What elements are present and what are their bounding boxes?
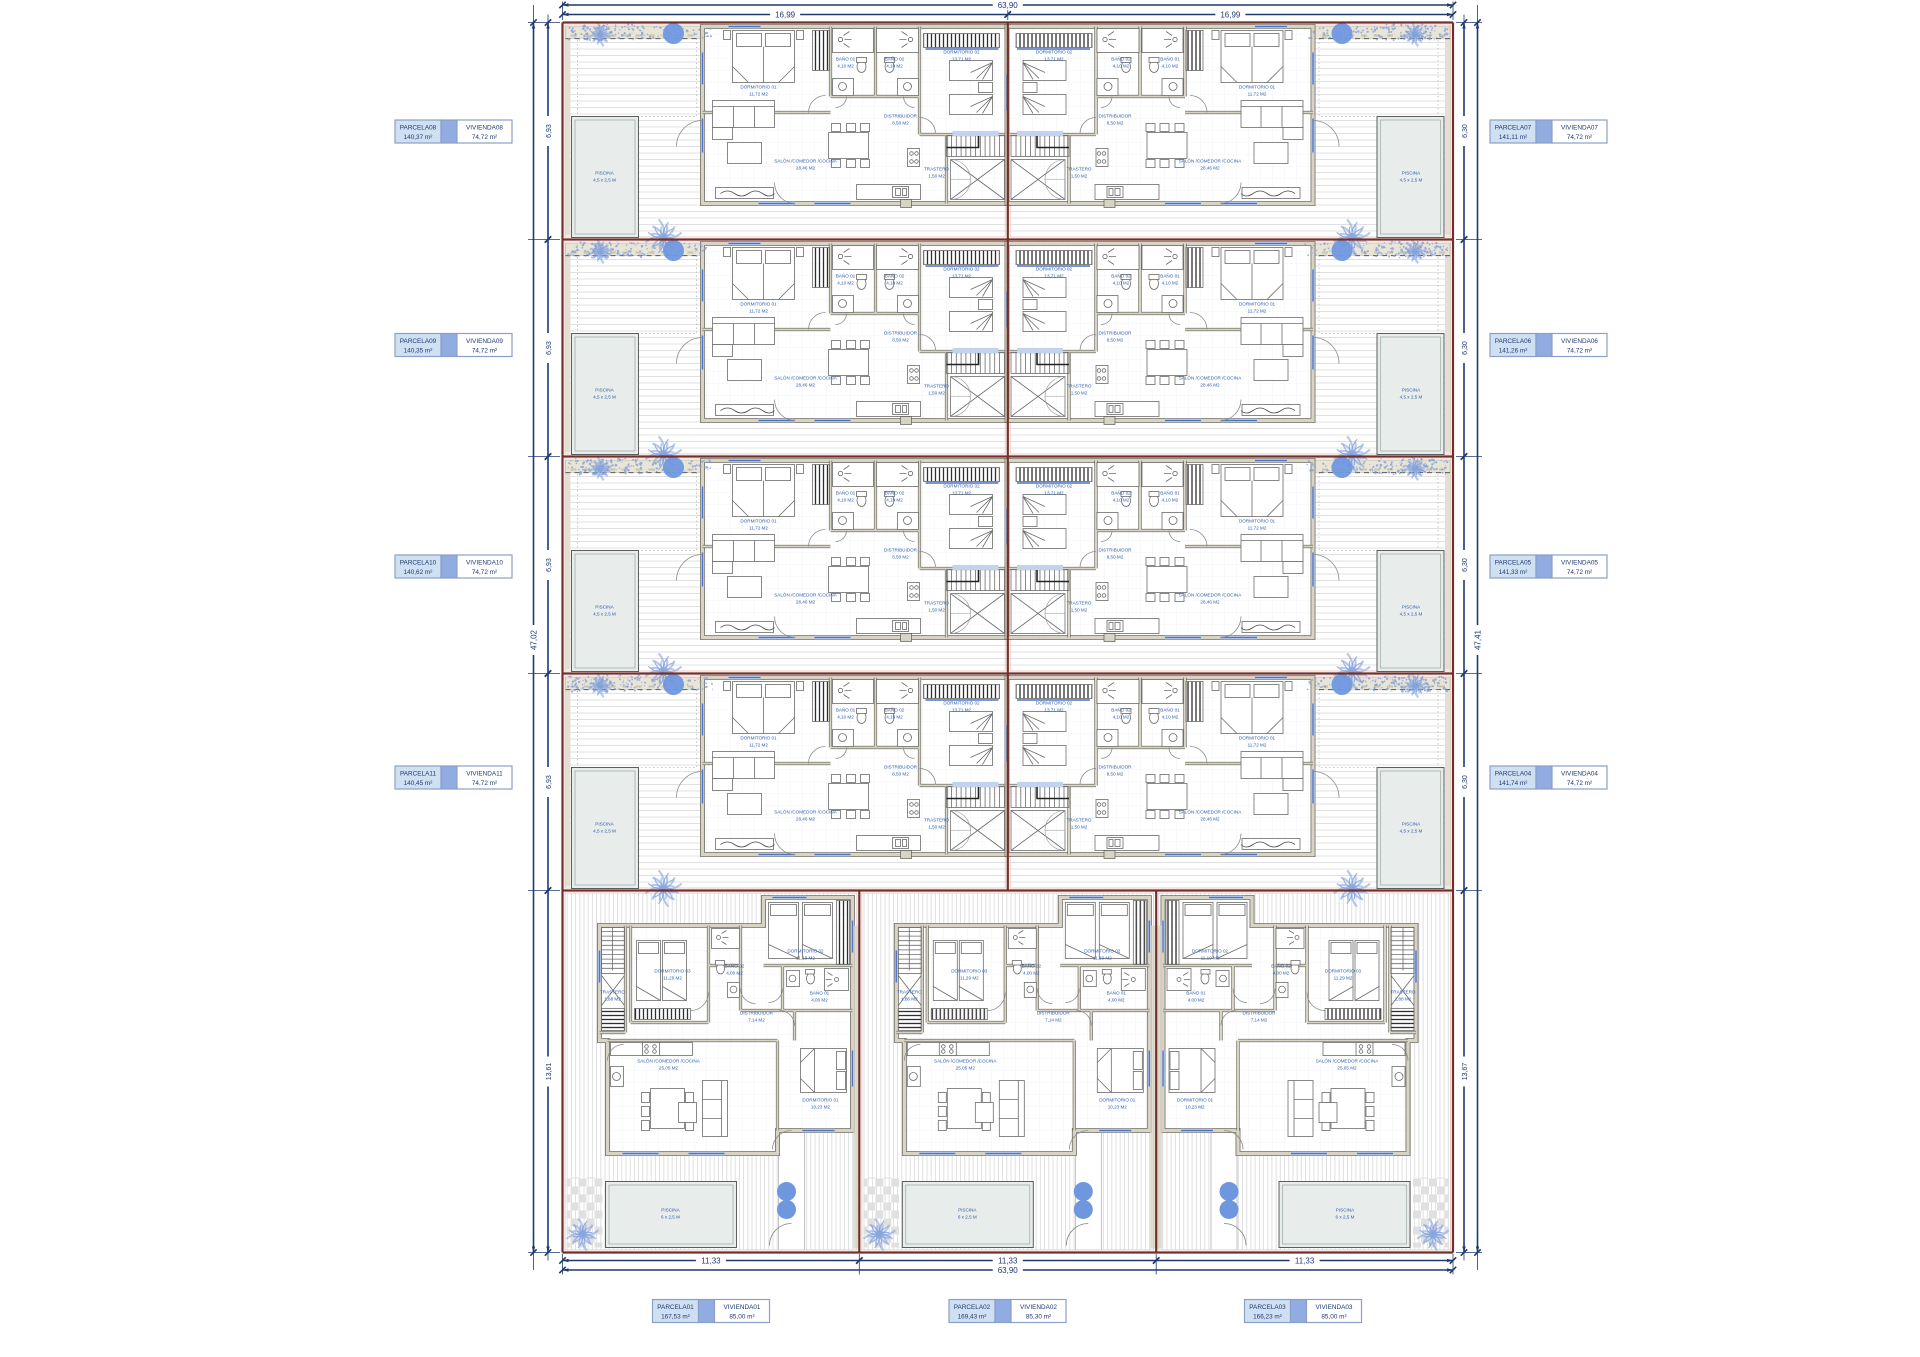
svg-text:BAÑO 01: BAÑO 01: [1160, 490, 1180, 496]
svg-text:PISCINA: PISCINA: [1402, 605, 1421, 610]
svg-text:BAÑO 02: BAÑO 02: [1111, 707, 1131, 713]
svg-text:PISCINA: PISCINA: [1402, 388, 1421, 393]
svg-text:28,46 M2: 28,46 M2: [796, 817, 816, 822]
svg-text:8,50 M2: 8,50 M2: [892, 121, 909, 126]
svg-text:PISCINA: PISCINA: [1402, 171, 1421, 176]
svg-text:DORMITORIO 02: DORMITORIO 02: [943, 267, 980, 272]
svg-text:13,71 M2: 13,71 M2: [952, 274, 972, 279]
svg-text:VIVIENDA08: VIVIENDA08: [466, 125, 503, 132]
svg-text:4,10 M2: 4,10 M2: [1113, 498, 1130, 503]
svg-text:DORMITORIO 01: DORMITORIO 01: [802, 1098, 839, 1103]
svg-text:DORMITORIO 01: DORMITORIO 01: [740, 85, 777, 90]
svg-text:4,10 M2: 4,10 M2: [837, 498, 854, 503]
svg-text:7,14 M2: 7,14 M2: [748, 1018, 765, 1023]
svg-text:10,23 M2: 10,23 M2: [1108, 1105, 1128, 1110]
svg-text:SALÓN /COMEDOR /COCINA: SALÓN /COMEDOR /COCINA: [1179, 375, 1242, 381]
svg-text:74,72 m²: 74,72 m²: [1567, 348, 1592, 355]
svg-text:SALÓN /COMEDOR /COCINA: SALÓN /COMEDOR /COCINA: [1179, 158, 1242, 164]
svg-text:74,72 m²: 74,72 m²: [472, 348, 497, 355]
svg-text:11,19 M2: 11,19 M2: [796, 956, 815, 961]
svg-text:141,74 m²: 141,74 m²: [1499, 780, 1528, 787]
svg-text:8,50 M2: 8,50 M2: [1107, 121, 1124, 126]
svg-text:SALÓN /COMEDOR /COCINA: SALÓN /COMEDOR /COCINA: [774, 158, 837, 164]
svg-text:4,10 M2: 4,10 M2: [837, 281, 854, 286]
svg-text:4,10 M2: 4,10 M2: [1162, 715, 1179, 720]
svg-text:13,71 M2: 13,71 M2: [1044, 708, 1064, 713]
svg-text:BAÑO 02: BAÑO 02: [885, 273, 905, 279]
svg-text:PARCELA07: PARCELA07: [1495, 125, 1532, 132]
svg-text:1,50 M2: 1,50 M2: [928, 825, 945, 830]
svg-text:1,88 M2: 1,88 M2: [604, 997, 621, 1002]
svg-text:PARCELA04: PARCELA04: [1495, 771, 1532, 778]
svg-text:11,19 M2: 11,19 M2: [1201, 956, 1220, 961]
svg-text:DORMITORIO 01: DORMITORIO 01: [740, 736, 777, 741]
svg-text:8,50 M2: 8,50 M2: [1107, 772, 1124, 777]
svg-text:VIVIENDA02: VIVIENDA02: [1020, 1304, 1057, 1311]
svg-text:DISTRIBUIDOR: DISTRIBUIDOR: [1099, 114, 1133, 119]
svg-text:6,30: 6,30: [1462, 775, 1469, 789]
svg-text:11,29 M2: 11,29 M2: [960, 976, 979, 981]
svg-text:1,88 M2: 1,88 M2: [1395, 997, 1412, 1002]
svg-text:6,30: 6,30: [1462, 124, 1469, 138]
svg-text:28,46 M2: 28,46 M2: [1200, 166, 1220, 171]
svg-text:PARCELA01: PARCELA01: [657, 1304, 694, 1311]
svg-text:VIVIENDA09: VIVIENDA09: [466, 338, 503, 345]
svg-text:11,19 M2: 11,19 M2: [1093, 956, 1112, 961]
svg-text:6,30: 6,30: [1462, 341, 1469, 355]
svg-text:1,50 M2: 1,50 M2: [928, 391, 945, 396]
svg-text:TRASTERO: TRASTERO: [924, 601, 949, 606]
svg-text:4,10 M2: 4,10 M2: [837, 715, 854, 720]
svg-text:7,14 M2: 7,14 M2: [1251, 1018, 1268, 1023]
svg-text:BAÑO 01: BAÑO 01: [836, 490, 856, 496]
svg-text:BAÑO 02: BAÑO 02: [1111, 56, 1131, 62]
svg-text:DISTRIBUIDOR: DISTRIBUIDOR: [1037, 1011, 1071, 1016]
svg-text:TRASTERO: TRASTERO: [600, 990, 625, 995]
svg-text:BAÑO 02: BAÑO 02: [885, 56, 905, 62]
svg-text:BAÑO 01: BAÑO 01: [836, 707, 856, 713]
svg-text:11,29 M2: 11,29 M2: [1334, 976, 1353, 981]
svg-text:1,50 M2: 1,50 M2: [928, 608, 945, 613]
svg-text:28,46 M2: 28,46 M2: [796, 600, 816, 605]
svg-text:140,45 m²: 140,45 m²: [404, 780, 433, 787]
svg-text:4,10 M2: 4,10 M2: [886, 498, 903, 503]
svg-text:4,5 x 2,5 M: 4,5 x 2,5 M: [1400, 829, 1423, 834]
svg-text:VIVIENDA05: VIVIENDA05: [1561, 560, 1598, 567]
svg-text:28,46 M2: 28,46 M2: [1200, 817, 1220, 822]
svg-text:11,72 M2: 11,72 M2: [1248, 743, 1267, 748]
svg-text:8,50 M2: 8,50 M2: [892, 555, 909, 560]
svg-text:PARCELA10: PARCELA10: [400, 560, 437, 567]
svg-text:6 x 2,5 M: 6 x 2,5 M: [1336, 1215, 1355, 1220]
svg-text:VIVIENDA01: VIVIENDA01: [724, 1304, 761, 1311]
svg-text:DORMITORIO 01: DORMITORIO 01: [1099, 1098, 1136, 1103]
svg-text:TRASTERO: TRASTERO: [897, 990, 922, 995]
svg-text:BAÑO 02: BAÑO 02: [725, 963, 745, 969]
svg-text:BAÑO 02: BAÑO 02: [1111, 273, 1131, 279]
svg-text:DORMITORIO 02: DORMITORIO 02: [1084, 949, 1121, 954]
svg-text:1,88 M2: 1,88 M2: [901, 997, 918, 1002]
svg-text:DISTRIBUIDOR: DISTRIBUIDOR: [1099, 548, 1133, 553]
svg-text:8,50 M2: 8,50 M2: [892, 772, 909, 777]
svg-text:1,50 M2: 1,50 M2: [1071, 608, 1088, 613]
svg-text:16,99: 16,99: [1220, 11, 1241, 20]
svg-text:6,93: 6,93: [546, 124, 553, 138]
svg-text:PARCELA11: PARCELA11: [400, 771, 436, 778]
svg-text:SALÓN /COMEDOR /COCINA: SALÓN /COMEDOR /COCINA: [1316, 1058, 1379, 1064]
svg-text:PISCINA: PISCINA: [661, 1208, 680, 1213]
svg-text:DORMITORIO 01: DORMITORIO 01: [1239, 85, 1276, 90]
svg-text:11,72 M2: 11,72 M2: [749, 309, 768, 314]
svg-text:4,5 x 2,5 M: 4,5 x 2,5 M: [1400, 395, 1423, 400]
svg-text:13,67: 13,67: [1462, 1063, 1469, 1081]
svg-text:SALÓN /COMEDOR /COCINA: SALÓN /COMEDOR /COCINA: [774, 592, 837, 598]
svg-text:166,23 m²: 166,23 m²: [1253, 1314, 1282, 1321]
svg-text:63,90: 63,90: [998, 1, 1019, 10]
svg-text:BAÑO 01: BAÑO 01: [836, 56, 856, 62]
svg-text:SALÓN /COMEDOR /COCINA: SALÓN /COMEDOR /COCINA: [774, 809, 837, 815]
svg-text:DISTRIBUIDOR: DISTRIBUIDOR: [884, 548, 918, 553]
svg-text:DORMITORIO 03: DORMITORIO 03: [654, 969, 691, 974]
svg-text:1,50 M2: 1,50 M2: [1071, 391, 1088, 396]
svg-text:85,00 m²: 85,00 m²: [729, 1314, 754, 1321]
svg-text:PARCELA03: PARCELA03: [1249, 1304, 1286, 1311]
svg-text:DORMITORIO 01: DORMITORIO 01: [740, 302, 777, 307]
svg-text:140,35 m²: 140,35 m²: [404, 348, 433, 355]
svg-text:BAÑO 02: BAÑO 02: [1111, 490, 1131, 496]
svg-text:TRASTERO: TRASTERO: [1066, 818, 1091, 823]
svg-text:PARCELA08: PARCELA08: [400, 125, 437, 132]
svg-text:8,50 M2: 8,50 M2: [1107, 338, 1124, 343]
svg-text:PARCELA02: PARCELA02: [954, 1304, 991, 1311]
svg-text:BAÑO 01: BAÑO 01: [1160, 707, 1180, 713]
svg-text:4,5 x 2,5 M: 4,5 x 2,5 M: [1400, 178, 1423, 183]
svg-text:4,10 M2: 4,10 M2: [886, 715, 903, 720]
svg-text:DORMITORIO 03: DORMITORIO 03: [951, 969, 988, 974]
svg-text:85,30 m²: 85,30 m²: [1026, 1314, 1051, 1321]
svg-text:4,00 M2: 4,00 M2: [1023, 971, 1040, 976]
svg-text:VIVIENDA04: VIVIENDA04: [1561, 771, 1598, 778]
svg-text:BAÑO 01: BAÑO 01: [1160, 56, 1180, 62]
svg-text:4,5 x 2,5 M: 4,5 x 2,5 M: [593, 612, 616, 617]
svg-text:11,72 M2: 11,72 M2: [1248, 92, 1267, 97]
svg-text:4,10 M2: 4,10 M2: [837, 64, 854, 69]
svg-text:28,46 M2: 28,46 M2: [1200, 600, 1220, 605]
svg-text:DORMITORIO 01: DORMITORIO 01: [1239, 736, 1276, 741]
svg-text:16,99: 16,99: [775, 11, 796, 20]
svg-text:4,10 M2: 4,10 M2: [1113, 64, 1130, 69]
svg-text:TRASTERO: TRASTERO: [1066, 167, 1091, 172]
svg-text:4,00 M2: 4,00 M2: [1108, 998, 1125, 1003]
svg-text:DORMITORIO 02: DORMITORIO 02: [943, 50, 980, 55]
svg-text:6,30: 6,30: [1462, 558, 1469, 572]
svg-text:4,5 x 2,5 M: 4,5 x 2,5 M: [593, 178, 616, 183]
svg-text:7,14 M2: 7,14 M2: [1045, 1018, 1062, 1023]
svg-text:11,33: 11,33: [1295, 1257, 1315, 1266]
svg-text:PISCINA: PISCINA: [595, 822, 614, 827]
svg-text:6,93: 6,93: [546, 558, 553, 572]
svg-text:DISTRIBUIDOR: DISTRIBUIDOR: [884, 114, 918, 119]
svg-text:VIVIENDA03: VIVIENDA03: [1316, 1304, 1353, 1311]
svg-text:BAÑO 02: BAÑO 02: [1271, 963, 1291, 969]
svg-text:10,23 M2: 10,23 M2: [1185, 1105, 1205, 1110]
svg-text:DISTRIBUIDOR: DISTRIBUIDOR: [1099, 765, 1133, 770]
svg-text:BAÑO 02: BAÑO 02: [1022, 963, 1042, 969]
svg-text:74,72 m²: 74,72 m²: [472, 780, 497, 787]
svg-text:74,72 m²: 74,72 m²: [1567, 134, 1592, 141]
svg-text:13,71 M2: 13,71 M2: [952, 708, 972, 713]
svg-text:DORMITORIO 01: DORMITORIO 01: [740, 519, 777, 524]
svg-text:BAÑO 02: BAÑO 02: [885, 490, 905, 496]
svg-text:DISTRIBUIDOR: DISTRIBUIDOR: [884, 331, 918, 336]
svg-text:1,50 M2: 1,50 M2: [928, 174, 945, 179]
svg-text:TRASTERO: TRASTERO: [924, 384, 949, 389]
svg-text:63,90: 63,90: [998, 1266, 1019, 1275]
svg-text:4,00 M2: 4,00 M2: [811, 998, 828, 1003]
svg-text:DORMITORIO 01: DORMITORIO 01: [1239, 302, 1276, 307]
svg-text:DORMITORIO 01: DORMITORIO 01: [1239, 519, 1276, 524]
svg-text:DORMITORIO 02: DORMITORIO 02: [943, 701, 980, 706]
svg-text:74,72 m²: 74,72 m²: [472, 569, 497, 576]
svg-text:PISCINA: PISCINA: [1336, 1208, 1355, 1213]
svg-text:VIVIENDA11: VIVIENDA11: [466, 771, 503, 778]
svg-text:74,72 m²: 74,72 m²: [1567, 780, 1592, 787]
svg-text:DORMITORIO 02: DORMITORIO 02: [1192, 949, 1229, 954]
svg-text:PARCELA05: PARCELA05: [1495, 560, 1532, 567]
svg-text:PISCINA: PISCINA: [958, 1208, 977, 1213]
svg-text:BAÑO 01: BAÑO 01: [1186, 990, 1206, 996]
svg-text:141,33 m²: 141,33 m²: [1499, 569, 1528, 576]
svg-text:VIVIENDA10: VIVIENDA10: [466, 560, 503, 567]
svg-text:DORMITORIO 02: DORMITORIO 02: [1036, 484, 1073, 489]
svg-text:74,72 m²: 74,72 m²: [472, 134, 497, 141]
svg-text:BAÑO 01: BAÑO 01: [836, 273, 856, 279]
svg-text:11,72 M2: 11,72 M2: [749, 92, 768, 97]
svg-text:SALÓN /COMEDOR /COCINA: SALÓN /COMEDOR /COCINA: [1179, 592, 1242, 598]
svg-text:11,29 M2: 11,29 M2: [663, 976, 682, 981]
svg-text:141,26 m²: 141,26 m²: [1499, 348, 1528, 355]
svg-text:SALÓN /COMEDOR /COCINA: SALÓN /COMEDOR /COCINA: [774, 375, 837, 381]
svg-text:25,05 M2: 25,05 M2: [1337, 1066, 1357, 1071]
svg-text:6 x 2,5 M: 6 x 2,5 M: [661, 1215, 680, 1220]
svg-text:4,10 M2: 4,10 M2: [1162, 64, 1179, 69]
svg-text:TRASTERO: TRASTERO: [924, 167, 949, 172]
svg-text:4,10 M2: 4,10 M2: [1162, 281, 1179, 286]
svg-text:PARCELA09: PARCELA09: [400, 338, 437, 345]
svg-text:11,33: 11,33: [701, 1257, 721, 1266]
svg-text:PISCINA: PISCINA: [595, 605, 614, 610]
svg-text:11,72 M2: 11,72 M2: [1248, 526, 1267, 531]
svg-text:13,71 M2: 13,71 M2: [1044, 57, 1064, 62]
svg-text:4,00 M2: 4,00 M2: [726, 971, 743, 976]
svg-text:BAÑO 02: BAÑO 02: [885, 707, 905, 713]
svg-text:DORMITORIO 02: DORMITORIO 02: [1036, 701, 1073, 706]
svg-text:4,5 x 2,5 M: 4,5 x 2,5 M: [1400, 612, 1423, 617]
svg-text:74,72 m²: 74,72 m²: [1567, 569, 1592, 576]
svg-text:PISCINA: PISCINA: [595, 388, 614, 393]
svg-text:4,10 M2: 4,10 M2: [886, 64, 903, 69]
svg-text:TRASTERO: TRASTERO: [1390, 990, 1415, 995]
svg-text:4,10 M2: 4,10 M2: [886, 281, 903, 286]
svg-text:140,37 m²: 140,37 m²: [404, 134, 433, 141]
svg-text:11,33: 11,33: [998, 1257, 1018, 1266]
svg-text:SALÓN /COMEDOR /COCINA: SALÓN /COMEDOR /COCINA: [934, 1058, 997, 1064]
svg-text:VIVIENDA07: VIVIENDA07: [1561, 125, 1598, 132]
svg-text:DISTRIBUIDOR: DISTRIBUIDOR: [1099, 331, 1133, 336]
svg-text:DISTRIBUIDOR: DISTRIBUIDOR: [1243, 1011, 1277, 1016]
svg-text:11,72 M2: 11,72 M2: [749, 743, 768, 748]
svg-text:169,43 m²: 169,43 m²: [958, 1314, 987, 1321]
svg-text:4,5 x 2,5 M: 4,5 x 2,5 M: [593, 395, 616, 400]
svg-text:47,02: 47,02: [530, 629, 539, 650]
svg-text:DORMITORIO 02: DORMITORIO 02: [943, 484, 980, 489]
svg-text:TRASTERO: TRASTERO: [1066, 384, 1091, 389]
svg-text:SALÓN /COMEDOR /COCINA: SALÓN /COMEDOR /COCINA: [637, 1058, 700, 1064]
svg-text:DORMITORIO 02: DORMITORIO 02: [1036, 267, 1073, 272]
svg-text:28,46 M2: 28,46 M2: [796, 166, 816, 171]
svg-text:13,71 M2: 13,71 M2: [1044, 274, 1064, 279]
svg-text:4,10 M2: 4,10 M2: [1162, 498, 1179, 503]
svg-text:85,00 m²: 85,00 m²: [1321, 1314, 1346, 1321]
svg-text:10,23 M2: 10,23 M2: [811, 1105, 831, 1110]
svg-text:4,5 x 2,5 M: 4,5 x 2,5 M: [593, 829, 616, 834]
svg-text:6,93: 6,93: [546, 341, 553, 355]
svg-text:DISTRIBUIDOR: DISTRIBUIDOR: [884, 765, 918, 770]
svg-text:1,50 M2: 1,50 M2: [1071, 174, 1088, 179]
svg-text:TRASTERO: TRASTERO: [1066, 601, 1091, 606]
svg-text:8,50 M2: 8,50 M2: [1107, 555, 1124, 560]
svg-text:13,71 M2: 13,71 M2: [1044, 491, 1064, 496]
svg-text:PARCELA06: PARCELA06: [1495, 338, 1532, 345]
svg-text:PISCINA: PISCINA: [595, 171, 614, 176]
svg-text:DORMITORIO 03: DORMITORIO 03: [1325, 969, 1362, 974]
svg-text:DISTRIBUIDOR: DISTRIBUIDOR: [740, 1011, 774, 1016]
svg-text:28,46 M2: 28,46 M2: [1200, 383, 1220, 388]
svg-text:167,53 m²: 167,53 m²: [661, 1314, 690, 1321]
svg-text:DORMITORIO 01: DORMITORIO 01: [1177, 1098, 1214, 1103]
svg-text:11,72 M2: 11,72 M2: [749, 526, 768, 531]
svg-text:11,72 M2: 11,72 M2: [1248, 309, 1267, 314]
svg-text:4,10 M2: 4,10 M2: [1113, 281, 1130, 286]
svg-text:25,05 M2: 25,05 M2: [956, 1066, 976, 1071]
svg-text:PISCINA: PISCINA: [1402, 822, 1421, 827]
svg-text:BAÑO 01: BAÑO 01: [1160, 273, 1180, 279]
svg-text:4,10 M2: 4,10 M2: [1113, 715, 1130, 720]
svg-text:SALÓN /COMEDOR /COCINA: SALÓN /COMEDOR /COCINA: [1179, 809, 1242, 815]
svg-text:25,05 M2: 25,05 M2: [659, 1066, 679, 1071]
svg-text:4,00 M2: 4,00 M2: [1188, 998, 1205, 1003]
svg-text:13,71 M2: 13,71 M2: [952, 491, 972, 496]
svg-text:6 x 2,5 M: 6 x 2,5 M: [958, 1215, 977, 1220]
svg-text:4,00 M2: 4,00 M2: [1273, 971, 1290, 976]
svg-text:1,50 M2: 1,50 M2: [1071, 825, 1088, 830]
svg-text:141,11 m²: 141,11 m²: [1499, 134, 1527, 141]
svg-text:TRASTERO: TRASTERO: [924, 818, 949, 823]
svg-text:13,71 M2: 13,71 M2: [952, 57, 972, 62]
svg-text:28,46 M2: 28,46 M2: [796, 383, 816, 388]
svg-text:47,41: 47,41: [1474, 629, 1483, 650]
svg-text:VIVIENDA06: VIVIENDA06: [1561, 338, 1598, 345]
svg-text:DORMITORIO 02: DORMITORIO 02: [787, 949, 824, 954]
svg-text:13,61: 13,61: [546, 1063, 553, 1081]
svg-text:DORMITORIO 02: DORMITORIO 02: [1036, 50, 1073, 55]
svg-text:8,50 M2: 8,50 M2: [892, 338, 909, 343]
svg-text:BAÑO 01: BAÑO 01: [810, 990, 830, 996]
svg-text:BAÑO 01: BAÑO 01: [1107, 990, 1127, 996]
svg-text:6,93: 6,93: [546, 775, 553, 789]
svg-text:140,62 m²: 140,62 m²: [404, 569, 433, 576]
